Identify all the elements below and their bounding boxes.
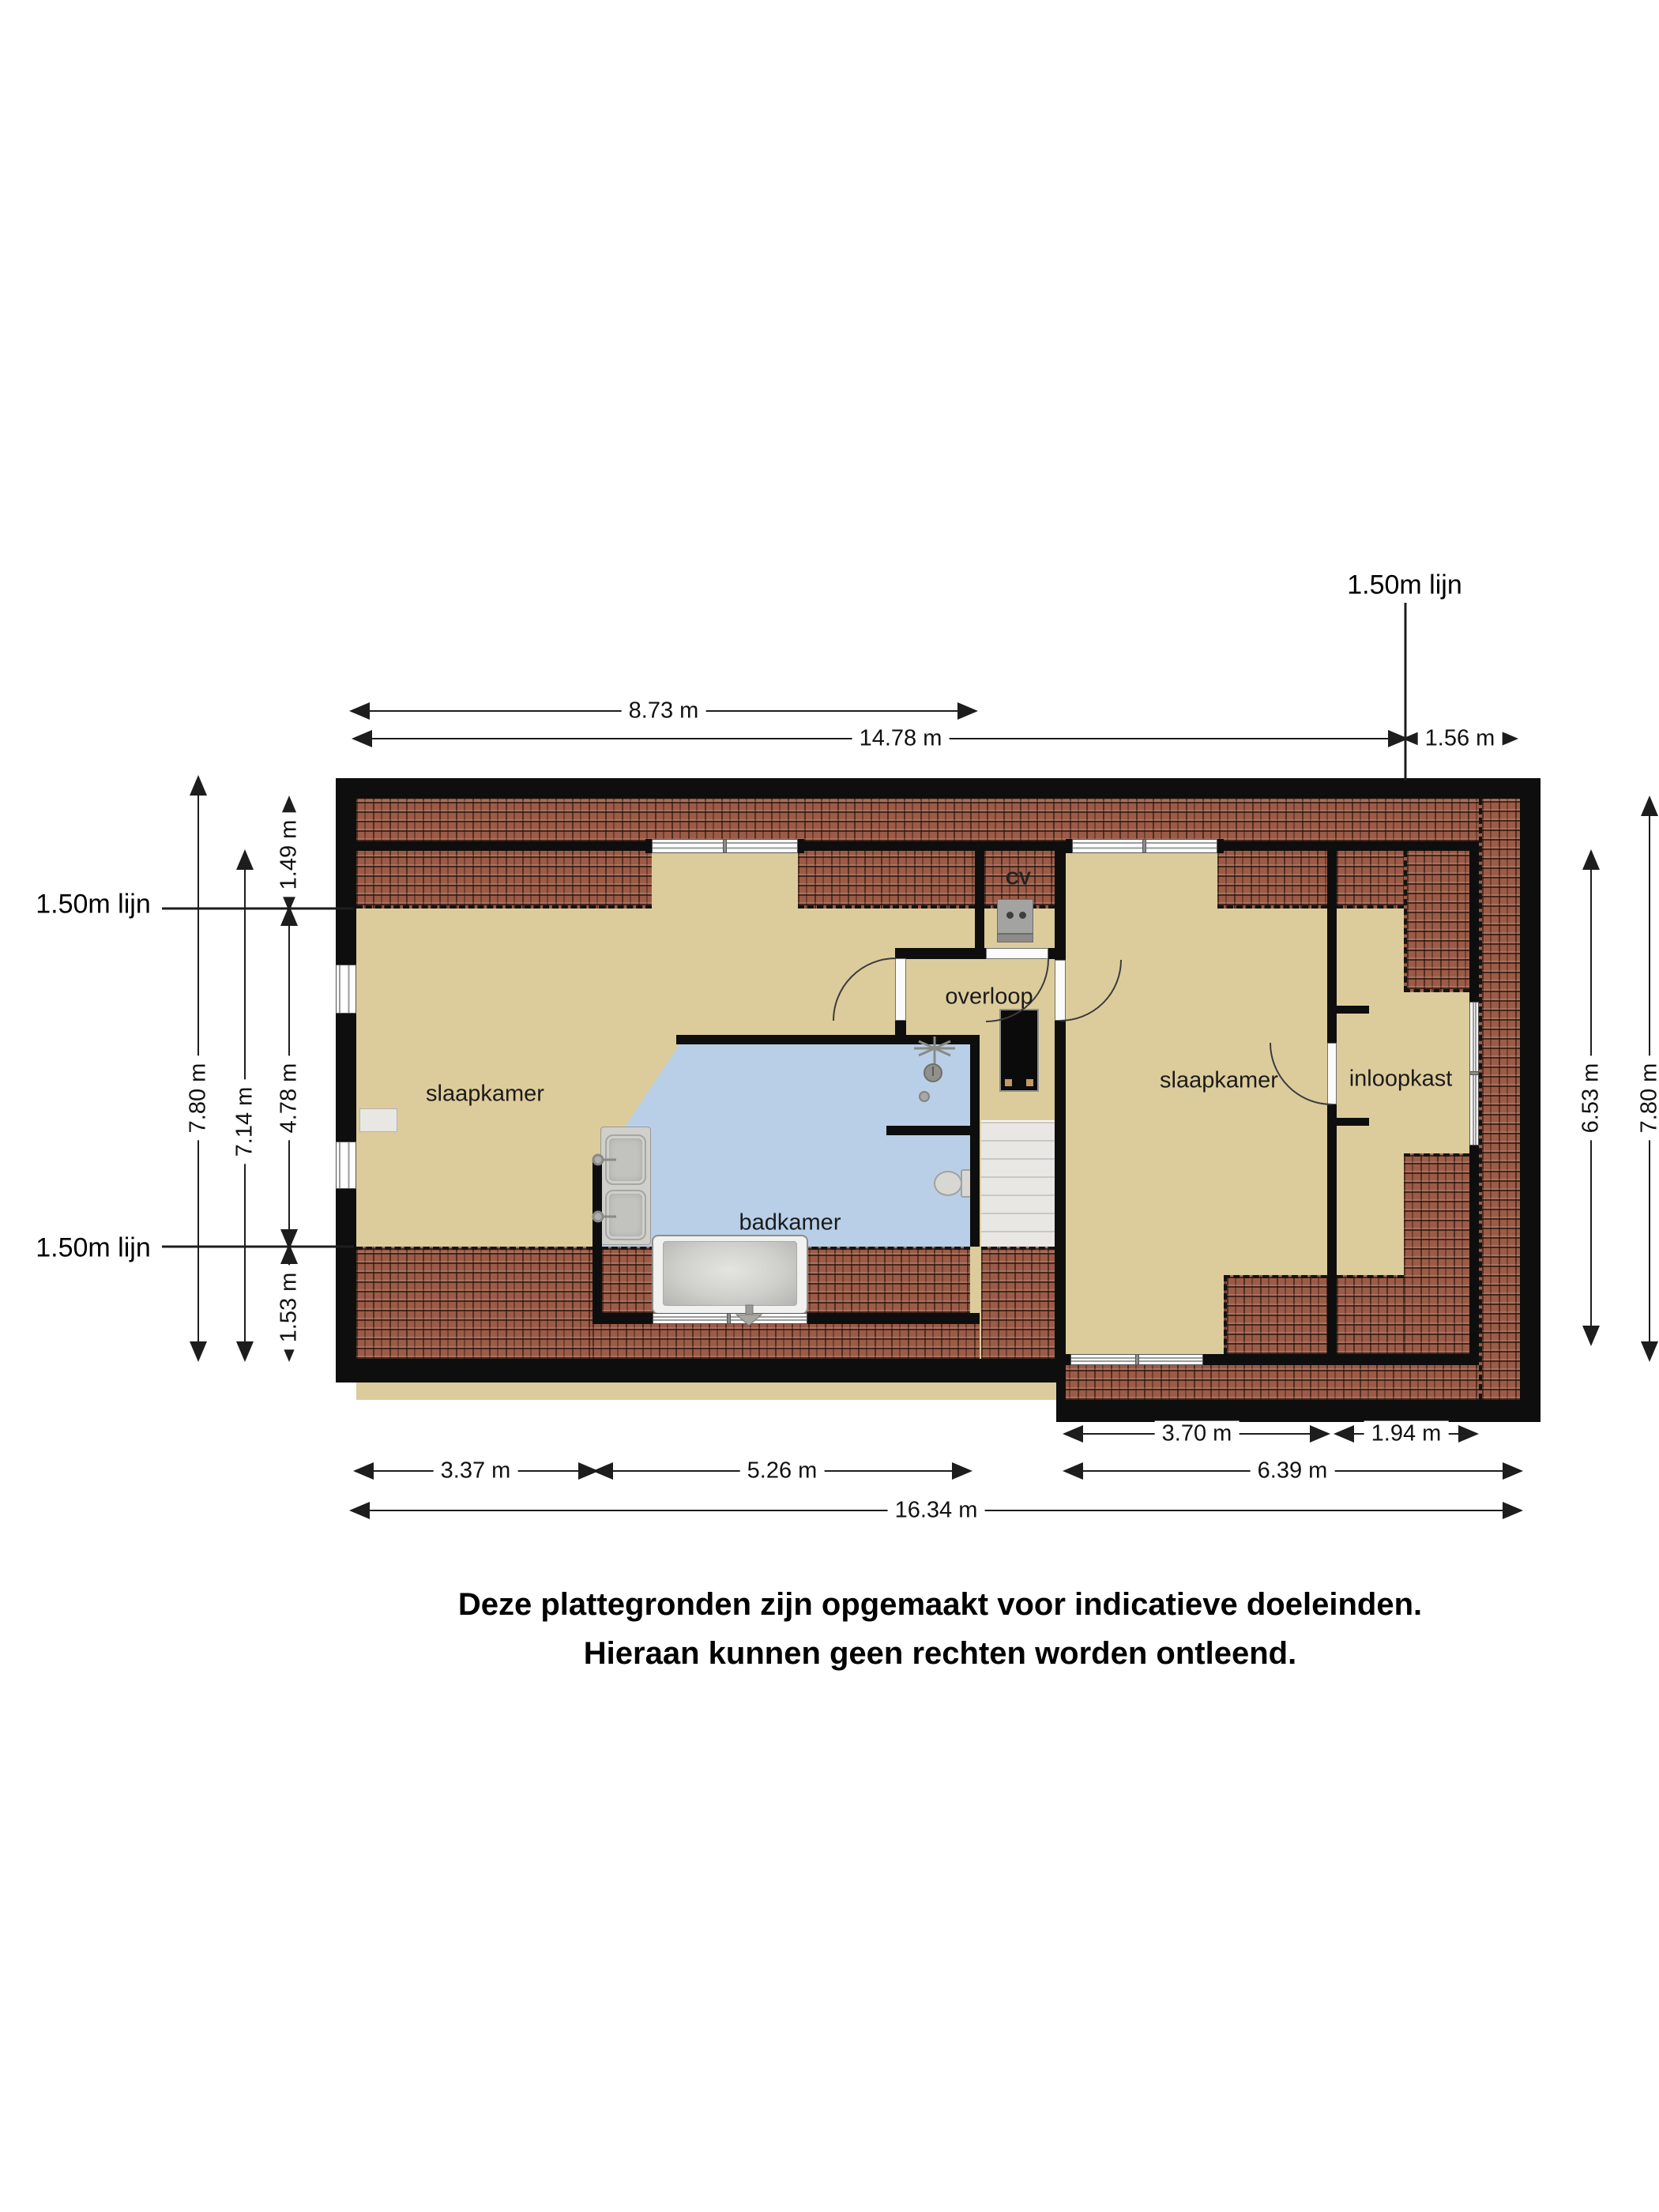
window-left-wall-upper <box>336 965 356 1014</box>
room-label-slaapkamer-right: slaapkamer <box>1160 1068 1278 1094</box>
wall <box>1520 778 1540 1422</box>
wall <box>1048 948 1066 959</box>
wall <box>1327 1104 1337 1354</box>
radiator <box>359 1108 397 1132</box>
dimension-label-14: 6.53 m <box>1578 1056 1604 1141</box>
window-mullion <box>1469 1071 1479 1075</box>
room-label-overloop: overloop <box>945 984 1033 1010</box>
sink-basin <box>605 1134 646 1185</box>
wall <box>975 841 984 957</box>
cv-unit <box>997 899 1033 934</box>
wall <box>336 778 356 1382</box>
roof-tile-area <box>1217 851 1327 908</box>
roof-tile-area <box>356 1247 592 1359</box>
roof-tile-area <box>356 799 1520 841</box>
wall <box>1055 841 1066 960</box>
wall <box>895 948 906 958</box>
window-cap <box>1217 839 1224 853</box>
wall <box>807 1313 980 1324</box>
wall <box>1469 1145 1479 1354</box>
roof-tile-area <box>1337 851 1404 908</box>
wall <box>1203 1354 1337 1365</box>
dimension-label-15: 7.80 m <box>1637 1056 1659 1141</box>
disclaimer-line-2: Hieraan kunnen geen rechten worden ontle… <box>190 1629 1659 1678</box>
door-overloop <box>986 948 1048 959</box>
roof-tile-area <box>1224 1275 1337 1354</box>
dimension-label-0: 8.73 m <box>622 698 706 724</box>
wall <box>1217 841 1479 851</box>
dimension-label-5: 3.37 m <box>434 1458 518 1484</box>
hl-top-right: 1.50m lijn <box>1342 570 1467 601</box>
window-cap <box>646 1313 653 1324</box>
cv-dot <box>1006 912 1014 919</box>
stair-void-mark <box>1026 1079 1033 1086</box>
dimension-label-4: 1.94 m <box>1364 1421 1449 1447</box>
window-cap <box>798 839 804 853</box>
dimension-label-7: 6.39 m <box>1251 1458 1335 1484</box>
stair-void-mark <box>1005 1079 1012 1086</box>
window-left-wall-lower <box>336 1142 356 1189</box>
roof-tile-area <box>1479 799 1520 1400</box>
wall <box>906 948 986 959</box>
roof-tile-area <box>981 1247 1055 1359</box>
roof-tile-area <box>592 1324 980 1359</box>
wall <box>970 1035 980 1247</box>
wall <box>1056 1400 1540 1422</box>
room-label-slaapkamer-left: slaapkamer <box>426 1082 544 1108</box>
room-label-badkamer: badkamer <box>739 1210 841 1236</box>
dimension-label-10: 7.14 m <box>232 1080 258 1164</box>
window-cap <box>645 839 652 853</box>
cv-label: CV <box>1006 868 1031 890</box>
room-label-inloopkast: inloopkast <box>1349 1066 1453 1093</box>
dimension-label-2: 1.56 m <box>1418 726 1503 752</box>
window-mullion <box>723 839 727 853</box>
wall <box>1337 1006 1369 1014</box>
roof-tile-area <box>1061 1365 1479 1400</box>
wall <box>1061 1354 1070 1365</box>
wall <box>1327 841 1337 1043</box>
sink-basin <box>605 1190 646 1240</box>
roof-tile-area <box>1404 851 1469 992</box>
roof-tile-area <box>1404 1153 1469 1354</box>
wall <box>592 1161 602 1324</box>
cv-dot <box>1019 912 1026 919</box>
wall <box>356 841 652 851</box>
roof-tile-area <box>1337 1275 1404 1354</box>
dimension-label-1: 14.78 m <box>852 726 950 752</box>
door-slaapkamer-right <box>1055 960 1066 1021</box>
wall <box>1469 841 1479 1002</box>
disclaimer: Deze plattegronden zijn opgemaakt voor i… <box>190 1580 1659 1678</box>
wall <box>592 1313 653 1324</box>
window-mullion <box>1135 1354 1139 1365</box>
window-cap <box>1469 995 1479 1002</box>
dimension-label-11: 1.49 m <box>276 813 303 897</box>
wall <box>1056 1359 1066 1422</box>
roof-tile-area <box>798 851 975 908</box>
dimension-label-9: 7.80 m <box>186 1056 212 1141</box>
wall <box>1337 1354 1479 1365</box>
wall <box>798 841 1072 851</box>
wall <box>886 1126 980 1135</box>
window-mullion <box>727 1313 731 1324</box>
floorplan-canvas: Deze plattegronden zijn opgemaakt voor i… <box>0 0 1659 2212</box>
wall <box>336 1359 1066 1382</box>
window-cap <box>807 1313 814 1324</box>
cv-unit-base <box>997 934 1033 942</box>
disclaimer-line-1: Deze plattegronden zijn opgemaakt voor i… <box>190 1580 1659 1629</box>
hl-left-lower: 1.50m lijn <box>31 1233 156 1264</box>
door-slaapkamer-left <box>895 958 906 1021</box>
door-inloopkast <box>1327 1043 1337 1104</box>
staircase <box>981 1120 1055 1247</box>
window-cap <box>1066 839 1072 853</box>
dimension-label-6: 5.26 m <box>740 1458 825 1484</box>
roof-tile-area <box>356 851 652 908</box>
wall <box>676 1035 980 1044</box>
dimension-label-8: 16.34 m <box>888 1498 985 1524</box>
dimension-label-13: 1.53 m <box>276 1266 303 1350</box>
bathtub-inner <box>663 1241 797 1306</box>
window-cap <box>1469 1145 1479 1152</box>
toilet-bowl <box>934 1171 962 1196</box>
wall <box>336 778 1540 799</box>
window-mullion <box>1142 839 1146 853</box>
hl-left-upper: 1.50m lijn <box>31 890 156 920</box>
wall <box>1337 1118 1369 1126</box>
dimension-label-12: 4.78 m <box>276 1056 303 1141</box>
dimension-label-3: 3.70 m <box>1155 1421 1240 1447</box>
wall <box>1055 1021 1066 1359</box>
